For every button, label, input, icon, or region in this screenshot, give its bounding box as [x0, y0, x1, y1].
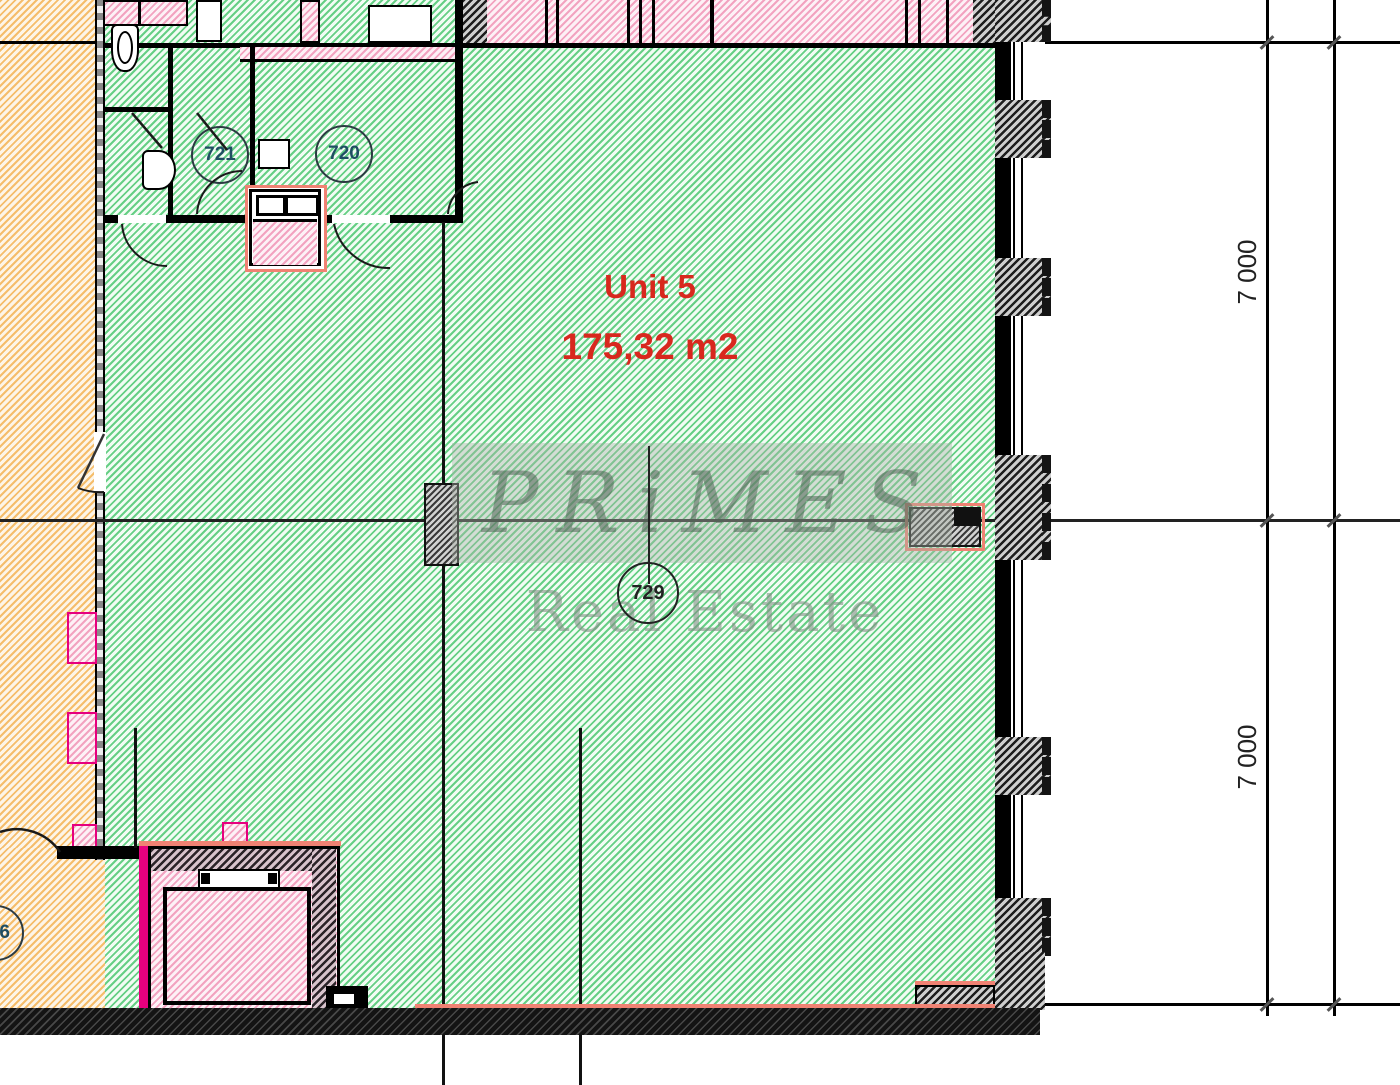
- watermark-letter: P: [482, 454, 539, 552]
- elevator-door-jamb: [268, 873, 277, 884]
- room-circle-720: 720: [315, 125, 373, 183]
- dimension-line-vertical-2: [1333, 0, 1336, 1016]
- room-circle-721: 721: [191, 126, 249, 184]
- duct-shaft-frame: [249, 189, 321, 266]
- mullion-divider: [556, 0, 559, 43]
- partition-line: [442, 222, 445, 1085]
- top-cell-divider: [138, 0, 141, 26]
- top-cabinet-box: [368, 5, 432, 43]
- room-number: 720: [328, 143, 360, 165]
- grid-line-horizontal-bottom: [1045, 1003, 1400, 1006]
- wall-return-notch: [334, 994, 354, 1004]
- duct-pink-cell: [253, 219, 317, 265]
- door-opening: [118, 215, 166, 223]
- facade-mullion: [995, 455, 1051, 560]
- toilet-block-right-wall: [455, 0, 463, 223]
- room-number: 729: [631, 582, 664, 605]
- duct-shaft: [245, 185, 327, 272]
- room-number: 721: [204, 144, 236, 166]
- wall-segment: [57, 846, 139, 859]
- mullion-divider: [652, 0, 655, 43]
- wc-fixture: [196, 0, 222, 42]
- watermark-letter: S: [864, 454, 922, 552]
- mullion-divider: [627, 0, 630, 43]
- room-circle-729: 729: [617, 562, 679, 624]
- door-opening: [332, 215, 390, 223]
- column-cap: [954, 509, 980, 526]
- grid-line-horizontal-top: [1045, 41, 1400, 44]
- watermark-subtitle: Real Estate: [490, 580, 920, 650]
- fire-cabinet: [67, 612, 97, 664]
- floor-plan-canvas: 721 720 7 000 7 000 Unit 5 175,32 m2: [0, 0, 1400, 1085]
- wall-pier: [973, 0, 995, 43]
- watermark-letter: E: [785, 454, 846, 552]
- watermark-letter: M: [682, 454, 768, 552]
- facade-mullion: [995, 0, 1051, 42]
- dimension-line-vertical-1: [1266, 0, 1269, 1016]
- mullion-divider: [905, 0, 908, 43]
- elevator-left-accent: [139, 846, 148, 1012]
- door-opening-left-wall: [94, 432, 106, 492]
- mullion-divider: [639, 0, 642, 43]
- stall-partition: [168, 43, 173, 219]
- dimension-label-lower: 7 000: [1232, 697, 1262, 817]
- elevator-door: [198, 869, 280, 889]
- elevator-door-jamb: [201, 873, 210, 884]
- dimension-label-upper: 7 000: [1232, 212, 1262, 332]
- facade-mullion: [995, 737, 1051, 795]
- elevator-shaft-wall: [151, 849, 336, 871]
- wall-top: [95, 43, 995, 48]
- unit-area-label: 175,32 m2: [500, 326, 800, 370]
- room-number: 6: [0, 922, 10, 944]
- elevator-shaft-wall: [312, 849, 336, 1008]
- facade-mullion: [995, 952, 1045, 1010]
- top-duct-pink: [300, 0, 320, 43]
- sink-fixture: [142, 150, 176, 190]
- duct-cell: [285, 195, 319, 216]
- mullion-divider: [710, 0, 714, 43]
- top-cell-pink: [97, 0, 188, 26]
- mullion-divider: [545, 0, 548, 43]
- mullion-divider: [946, 0, 949, 43]
- wc-fixture: [111, 24, 139, 72]
- facade-mullion: [995, 898, 1051, 956]
- wall-pier: [462, 0, 487, 43]
- facade-mullion: [995, 258, 1051, 316]
- unit-name-label: Unit 5: [520, 268, 780, 308]
- watermark-letter: i: [637, 454, 664, 552]
- top-strip-pink: [487, 0, 973, 43]
- wall-left-edge: [103, 0, 105, 860]
- elevator-car: [163, 887, 311, 1005]
- facade-mullion: [995, 100, 1051, 158]
- stall-wall: [95, 107, 173, 112]
- elevator-shaft: [148, 846, 340, 1012]
- mullion-divider: [918, 0, 921, 43]
- watermark-band: P R i M E S: [452, 443, 952, 563]
- sink-fixture: [258, 139, 290, 169]
- partition-line: [134, 728, 137, 848]
- wc-bowl-icon: [117, 31, 133, 64]
- grid-line-top-left: [0, 41, 95, 44]
- toilet-top-shelf: [240, 47, 460, 62]
- bottom-wall: [0, 1008, 1040, 1035]
- fire-cabinet: [67, 712, 97, 764]
- watermark-letter: R: [556, 454, 619, 552]
- duct-cell: [256, 195, 286, 216]
